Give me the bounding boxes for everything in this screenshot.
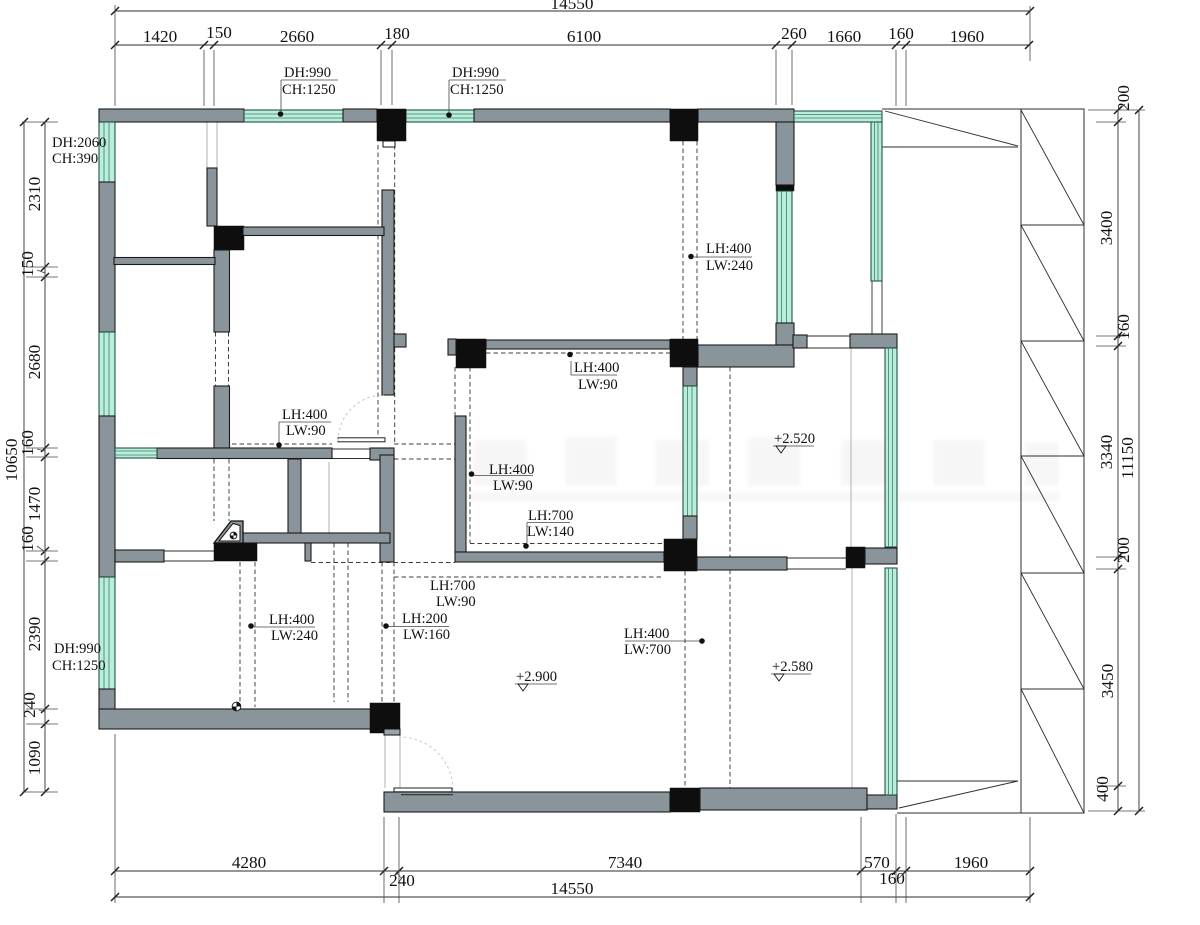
svg-text:1960: 1960 [950, 27, 984, 46]
svg-text:240: 240 [389, 871, 415, 890]
svg-text:+2.520: +2.520 [774, 431, 815, 447]
svg-text:14550: 14550 [551, 0, 594, 13]
svg-text:260: 260 [781, 24, 807, 43]
svg-text:180: 180 [384, 24, 410, 43]
svg-text:DH:990: DH:990 [452, 65, 499, 81]
svg-text:CH:1250: CH:1250 [52, 658, 106, 674]
svg-text:LW:160: LW:160 [403, 627, 450, 643]
svg-text:CH:390: CH:390 [52, 151, 98, 167]
svg-text:200: 200 [1114, 537, 1133, 563]
svg-text:LW:140: LW:140 [527, 524, 574, 540]
svg-text:LH:400: LH:400 [269, 612, 314, 628]
svg-text:160: 160 [1114, 314, 1133, 340]
svg-text:240: 240 [20, 692, 39, 718]
svg-text:4280: 4280 [232, 853, 266, 872]
svg-text:LH:400: LH:400 [706, 241, 751, 257]
svg-text:150: 150 [206, 23, 232, 42]
svg-text:LH:400: LH:400 [282, 407, 327, 423]
svg-text:LH:200: LH:200 [402, 611, 447, 627]
svg-text:1960: 1960 [954, 853, 988, 872]
svg-text:LH:400: LH:400 [574, 360, 619, 376]
svg-text:400: 400 [1093, 776, 1112, 802]
svg-text:14550: 14550 [551, 879, 594, 898]
svg-text:3400: 3400 [1097, 211, 1116, 245]
svg-text:LW:90: LW:90 [493, 478, 533, 494]
svg-text:LW:240: LW:240 [271, 628, 318, 644]
svg-text:DH:990: DH:990 [54, 641, 101, 657]
svg-text:2680: 2680 [25, 345, 44, 379]
svg-text:2390: 2390 [25, 617, 44, 651]
svg-text:+2.900: +2.900 [516, 669, 557, 685]
svg-text:LW:90: LW:90 [286, 423, 326, 439]
svg-text:2310: 2310 [25, 177, 44, 211]
svg-text:LW:90: LW:90 [578, 377, 618, 393]
svg-text:LW:90: LW:90 [436, 594, 476, 610]
svg-text:1660: 1660 [827, 27, 861, 46]
svg-text:6100: 6100 [567, 27, 601, 46]
svg-text:LH:700: LH:700 [528, 508, 573, 524]
svg-text:11150: 11150 [1118, 437, 1137, 479]
svg-text:LW:240: LW:240 [706, 258, 753, 274]
svg-text:2660: 2660 [280, 27, 314, 46]
svg-text:CH:1250: CH:1250 [450, 82, 504, 98]
svg-text:3340: 3340 [1097, 435, 1116, 469]
svg-text:10650: 10650 [2, 439, 21, 482]
svg-text:LW:700: LW:700 [624, 642, 671, 658]
svg-text:CH:1250: CH:1250 [282, 82, 336, 98]
svg-text:1420: 1420 [143, 27, 177, 46]
svg-text:200: 200 [1114, 85, 1133, 111]
svg-text:DH:990: DH:990 [284, 65, 331, 81]
svg-text:160: 160 [879, 869, 905, 888]
svg-text:1470: 1470 [25, 487, 44, 521]
svg-text:LH:700: LH:700 [430, 578, 475, 594]
svg-text:160: 160 [18, 526, 37, 552]
svg-text:1090: 1090 [25, 741, 44, 775]
svg-text:DH:2060: DH:2060 [52, 135, 106, 151]
svg-text:LH:400: LH:400 [624, 626, 669, 642]
svg-text:3450: 3450 [1098, 664, 1117, 698]
svg-text:+2.580: +2.580 [772, 659, 813, 675]
svg-text:7340: 7340 [608, 853, 642, 872]
svg-text:160: 160 [888, 24, 914, 43]
svg-text:150: 150 [18, 251, 37, 277]
